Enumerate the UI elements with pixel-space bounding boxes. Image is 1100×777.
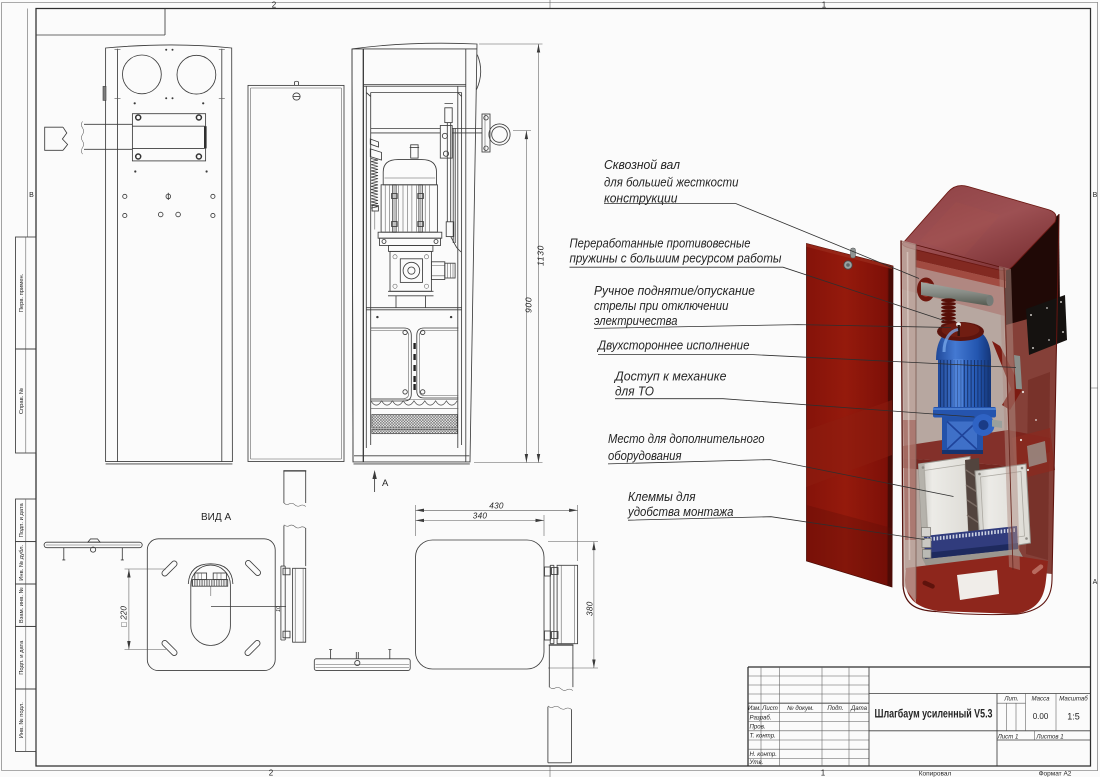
svg-text:Пров.: Пров. (750, 724, 766, 731)
svg-text:Т. контр.: Т. контр. (750, 733, 776, 740)
svg-text:Место для дополнительного: Место для дополнительного (608, 431, 765, 446)
svg-text:Копировал: Копировал (919, 771, 952, 777)
svg-text:Сквозной вал: Сквозной вал (604, 157, 681, 172)
svg-text:Разраб.: Разраб. (750, 714, 772, 721)
svg-text:Листов 1: Листов 1 (1035, 733, 1063, 740)
svg-text:Лист 1: Лист 1 (997, 733, 1019, 740)
svg-text:Дата: Дата (850, 705, 868, 712)
svg-text:№ докум.: № докум. (787, 705, 814, 712)
svg-text:В: В (1093, 192, 1098, 199)
svg-text:удобства монтажа: удобства монтажа (627, 504, 733, 519)
svg-text:В: В (29, 192, 34, 199)
svg-text:для ТО: для ТО (615, 384, 654, 399)
svg-text:ВИД: ВИД (201, 512, 222, 523)
svg-text:□ 220: □ 220 (120, 606, 129, 627)
svg-text:Масштаб: Масштаб (1059, 696, 1088, 703)
svg-text:электричества: электричества (594, 313, 678, 328)
svg-text:Подп.: Подп. (827, 705, 843, 712)
svg-text:0.00: 0.00 (1033, 712, 1049, 721)
svg-text:А: А (225, 512, 232, 523)
svg-text:380: 380 (585, 601, 594, 616)
svg-text:Переработанные противовесные: Переработанные противовесные (570, 235, 751, 250)
svg-text:Лист: Лист (761, 705, 778, 712)
svg-text:1: 1 (821, 769, 826, 777)
svg-text:1:5: 1:5 (1067, 712, 1080, 722)
svg-text:Изм.: Изм. (748, 705, 761, 712)
svg-text:Лит.: Лит. (1003, 696, 1018, 703)
svg-text:Клеммы для: Клеммы для (628, 489, 696, 504)
svg-text:Подп. и дата: Подп. и дата (19, 640, 25, 675)
svg-text:для большей жесткости: для большей жесткости (604, 175, 739, 190)
svg-text:Н. контр.: Н. контр. (750, 751, 778, 758)
svg-text:Масса: Масса (1031, 696, 1050, 703)
svg-text:430: 430 (489, 502, 504, 511)
svg-text:Ручное поднятие/опускание: Ручное поднятие/опускание (594, 283, 755, 298)
svg-text:900: 900 (524, 297, 534, 313)
svg-text:Взам. инв. №: Взам. инв. № (19, 587, 25, 623)
svg-text:Справ. №: Справ. № (19, 388, 25, 414)
svg-text:Формат А2: Формат А2 (1039, 771, 1072, 777)
svg-text:Перв. примен.: Перв. примен. (19, 273, 25, 312)
svg-text:Двухстороннее исполнение: Двухстороннее исполнение (596, 337, 749, 352)
svg-text:А: А (382, 478, 389, 489)
svg-text:А: А (1093, 579, 1098, 586)
svg-text:Утв.: Утв. (749, 759, 764, 766)
svg-text:Доступ к механике: Доступ к механике (613, 368, 726, 383)
svg-text:оборудования: оборудования (608, 448, 682, 463)
svg-text:2: 2 (269, 769, 274, 777)
svg-text:1130: 1130 (536, 245, 546, 266)
svg-text:340: 340 (473, 512, 488, 521)
svg-text:конструкции: конструкции (604, 190, 678, 205)
svg-text:пружины с большим ресурсом раб: пружины с большим ресурсом работы (570, 251, 782, 266)
svg-text:Подп. и дата: Подп. и дата (19, 502, 25, 537)
svg-text:Инв. № дубл.: Инв. № дубл. (19, 544, 25, 580)
svg-text:Инв. № подл.: Инв. № подл. (19, 702, 25, 738)
svg-text:Шлагбаум усиленный V5.3: Шлагбаум усиленный V5.3 (875, 707, 993, 721)
svg-text:10: 10 (276, 605, 282, 612)
svg-text:стрелы при отключении: стрелы при отключении (594, 298, 729, 313)
